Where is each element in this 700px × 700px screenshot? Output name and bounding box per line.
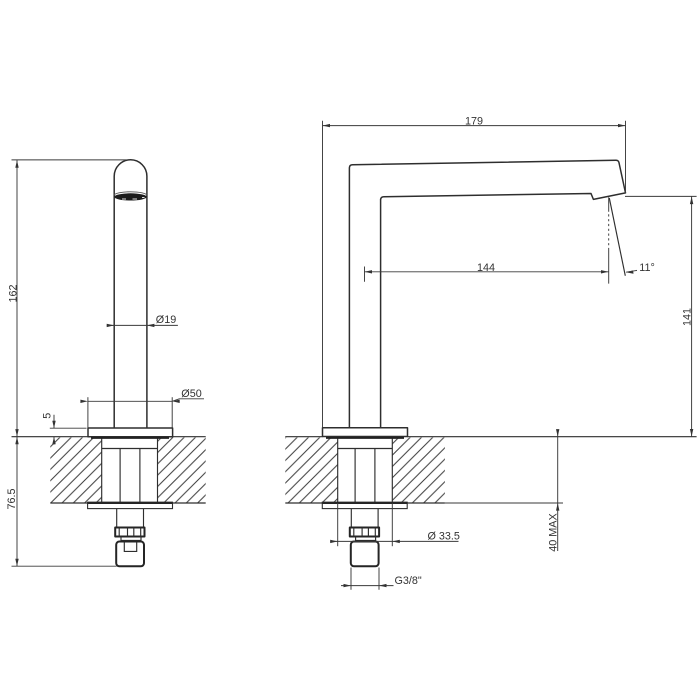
svg-text:Ø 33.5: Ø 33.5 xyxy=(428,531,460,543)
svg-text:141: 141 xyxy=(681,308,693,326)
svg-text:40 MAX: 40 MAX xyxy=(547,513,559,551)
svg-text:Ø50: Ø50 xyxy=(181,388,201,400)
svg-text:162: 162 xyxy=(8,284,20,302)
svg-text:Ø19: Ø19 xyxy=(156,314,176,326)
svg-text:G3/8": G3/8" xyxy=(395,575,422,587)
svg-text:5: 5 xyxy=(41,413,53,419)
svg-text:11°: 11° xyxy=(639,262,655,274)
svg-text:179: 179 xyxy=(465,115,483,127)
svg-text:144: 144 xyxy=(477,262,495,274)
svg-text:76.5: 76.5 xyxy=(6,488,18,509)
